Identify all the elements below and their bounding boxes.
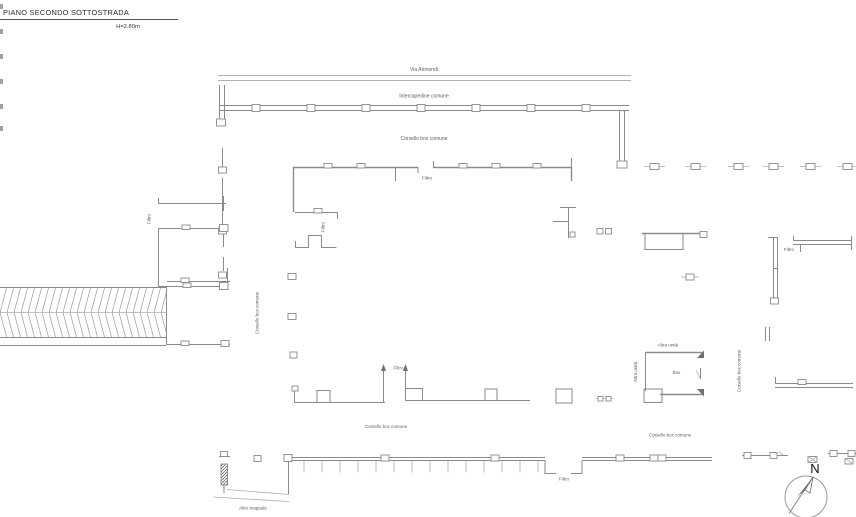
plan-title: PIANO SECONDO SOTTOSTRADA bbox=[3, 8, 129, 17]
label-filtro-right: Filtro bbox=[784, 247, 794, 252]
ramp-hatched bbox=[0, 287, 167, 346]
label-street: Via Arimondi bbox=[410, 67, 438, 73]
label-filtro-vertical-mid: Filtro bbox=[321, 222, 326, 232]
label-filtro-vertical-left: Filtro bbox=[147, 214, 152, 224]
bottom-left-boundary bbox=[213, 452, 289, 502]
label-filtro-bottom: Filtro bbox=[559, 477, 569, 482]
bottom-parking-wall bbox=[254, 455, 712, 474]
label-altra-unita-top: Altra unità bbox=[658, 343, 679, 348]
north-label: N bbox=[810, 461, 819, 476]
right-unit-room bbox=[644, 351, 704, 403]
door-marker-bottom bbox=[697, 389, 704, 397]
bottom-right-wall-segments bbox=[742, 451, 856, 465]
label-corsello-vertical-right: Corsello box comune bbox=[737, 349, 742, 392]
north-arrow: N bbox=[785, 461, 827, 517]
ramp-side-walls bbox=[167, 268, 230, 347]
label-filtro-top: Filtro bbox=[422, 176, 432, 181]
label-intercapedine: Intercapedine comune bbox=[399, 94, 449, 100]
corsello-column-markers bbox=[288, 274, 770, 359]
label-corsello-top: Corsello box comune bbox=[401, 136, 448, 142]
label-altra-unita-vertical: Altra unità bbox=[633, 361, 638, 382]
wall-hatch-bar bbox=[221, 464, 228, 485]
filtro-notch-left bbox=[545, 461, 556, 474]
label-corsello-bottom: Corsello box comune bbox=[365, 424, 408, 429]
mid-garage-walls bbox=[553, 207, 707, 250]
label-altro-mappale: Altro mappale bbox=[239, 506, 267, 511]
floor-plan-drawing: PIANO SECONDO SOTTOSTRADA H=2.80m bbox=[0, 0, 856, 517]
column-markers-row bbox=[644, 164, 856, 170]
label-filtro-center-bottom: Filtro bbox=[394, 366, 404, 371]
label-corsello-vertical-left: Corsello box comune bbox=[255, 291, 260, 334]
right-boundary-walls bbox=[768, 236, 853, 388]
plan-labels: Via Arimondi Intercapedine comune Corsel… bbox=[147, 67, 795, 511]
street-edge-lines bbox=[218, 76, 631, 81]
sheet-edge-marks bbox=[0, 4, 3, 131]
label-box: Box bbox=[673, 370, 682, 375]
left-filtro-rooms bbox=[158, 196, 228, 290]
left-boundary-wall bbox=[219, 148, 227, 278]
floor-plan-sheet: PIANO SECONDO SOTTOSTRADA H=2.80m bbox=[0, 0, 856, 517]
label-corsello-bottom-right: Corsello box comune bbox=[649, 433, 692, 438]
title-block: PIANO SECONDO SOTTOSTRADA H=2.80m bbox=[0, 8, 178, 30]
upper-garage-walls bbox=[294, 158, 572, 248]
door-marker-top bbox=[697, 351, 704, 359]
filtro-notch-right bbox=[571, 461, 582, 474]
central-lower-walls bbox=[292, 364, 613, 403]
floor-height-note: H=2.80m bbox=[116, 24, 140, 30]
parking-stall-ticks bbox=[304, 461, 538, 473]
